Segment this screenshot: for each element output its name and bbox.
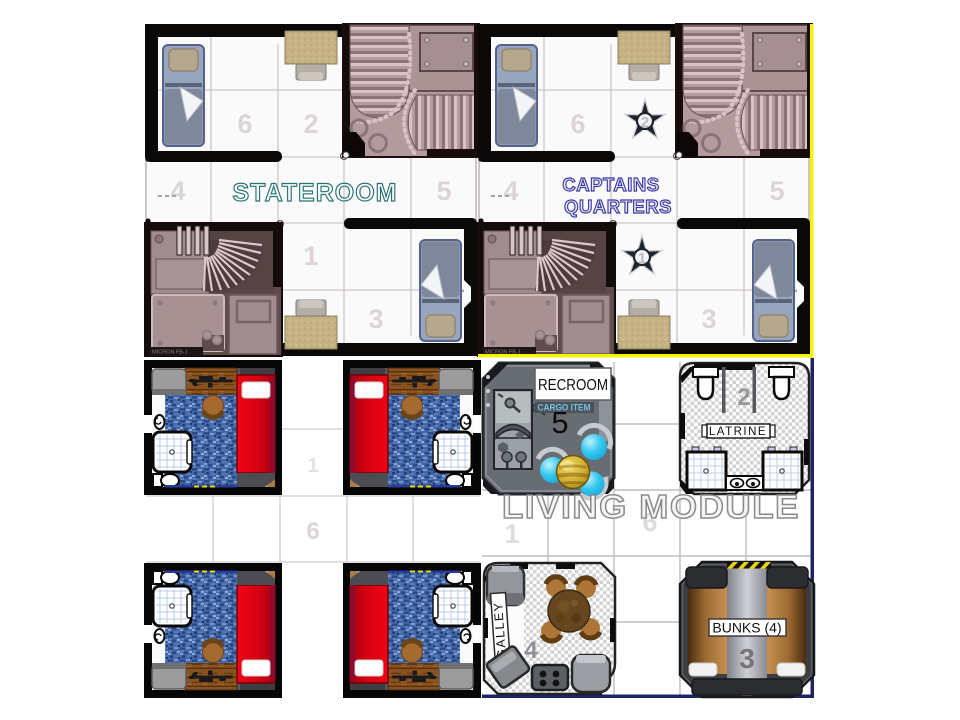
svg-text:1: 1 [638, 250, 646, 267]
svg-text:LIVING MODULE: LIVING MODULE [502, 488, 800, 525]
svg-text:1: 1 [307, 455, 318, 477]
svg-text:STATEROOM: STATEROOM [232, 179, 397, 207]
svg-text:1: 1 [303, 241, 318, 271]
svg-text:2: 2 [737, 384, 750, 411]
svg-text:5: 5 [551, 405, 568, 440]
svg-text:2: 2 [303, 109, 318, 139]
svg-text:6: 6 [306, 518, 319, 545]
svg-text:2: 2 [641, 114, 649, 131]
svg-text:CAPTAINS: CAPTAINS [562, 174, 659, 195]
svg-text:LATRINE: LATRINE [709, 426, 767, 438]
svg-text:RECROOM: RECROOM [538, 377, 608, 394]
svg-text:4: 4 [524, 637, 538, 664]
svg-text:QUARTERS: QUARTERS [564, 196, 672, 217]
svg-text:BUNKS (4): BUNKS (4) [712, 620, 781, 636]
svg-text:3: 3 [739, 643, 755, 674]
